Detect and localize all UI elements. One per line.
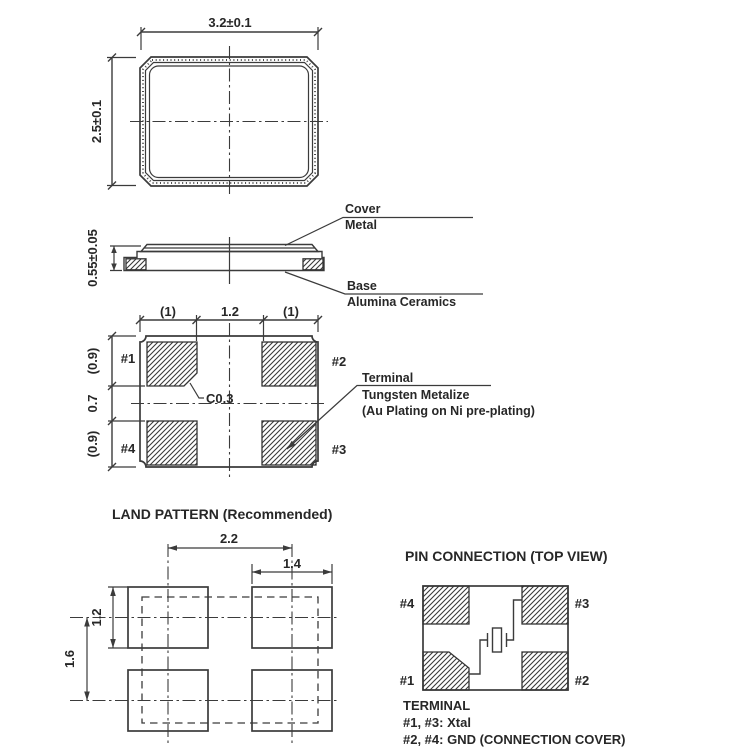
pin-pad-1: [423, 652, 469, 690]
pin-legend-line1: #1, #3: Xtal: [403, 715, 471, 730]
bottom-view: (1) 1.2 (1) (0.9) 0.7 (0.9) #1 #2 #4 #3 …: [85, 304, 535, 478]
land-dim-12-label: 1.2: [89, 608, 104, 626]
top-view: 3.2±0.1 2.5±0.1: [89, 15, 328, 197]
pin-legend-title: TERMINAL: [403, 698, 470, 713]
bottom-pin1-label: #1: [121, 351, 135, 366]
top-width-dim-label: 3.2±0.1: [208, 15, 251, 30]
chamfer-leader-line: [190, 383, 204, 398]
terminal-pad-1: [147, 342, 197, 386]
pin-label-2: #2: [575, 673, 589, 688]
base-leader-line: [285, 272, 483, 294]
side-base-outline: [124, 252, 324, 271]
terminal-pad-3: [262, 421, 316, 465]
pin-legend-line2: #2, #4: GND (CONNECTION COVER): [403, 732, 625, 747]
land-dim-14-arrow-right: [323, 569, 332, 575]
bottom-dim-left-label: (1): [160, 304, 176, 319]
cover-label-line2: Metal: [345, 218, 377, 232]
crystal-package-drawing: 3.2±0.1 2.5±0.1 0.55±0.05 Cover Metal Ba…: [0, 0, 750, 750]
land-pattern-title: LAND PATTERN (Recommended): [112, 506, 332, 522]
land-dim-12-arrow-top: [110, 587, 116, 596]
bottom-dim-center-label: 1.2: [221, 304, 239, 319]
pin-label-3: #3: [575, 596, 589, 611]
cover-label-line1: Cover: [345, 202, 381, 216]
side-view: 0.55±0.05 Cover Metal Base Alumina Ceram…: [85, 202, 483, 309]
crystal-wire-right: [507, 600, 523, 640]
land-dim-14-arrow-left: [252, 569, 261, 575]
land-dim-14-label: 1.4: [283, 556, 302, 571]
terminal-note-line1: Terminal: [362, 371, 413, 385]
land-dim-22-label: 2.2: [220, 531, 238, 546]
bottom-dim-right-label: (1): [283, 304, 299, 319]
land-dim-12-arrow-bottom: [110, 639, 116, 648]
pin-pad-2: [522, 652, 568, 690]
terminal-note-line2: Tungsten Metalize: [362, 388, 469, 402]
side-height-dim-label: 0.55±0.05: [85, 229, 100, 287]
side-terminal-left: [126, 259, 146, 270]
bottom-pin3-label: #3: [332, 442, 346, 457]
base-label-line2: Alumina Ceramics: [347, 295, 456, 309]
bottom-pin4-label: #4: [121, 441, 136, 456]
pin-connection-title: PIN CONNECTION (TOP VIEW): [405, 548, 608, 564]
pin-label-1: #1: [400, 673, 414, 688]
bottom-pin2-label: #2: [332, 354, 346, 369]
chamfer-label: C0.3: [206, 391, 233, 406]
crystal-symbol: [493, 628, 502, 652]
pin-pad-4: [423, 586, 469, 624]
pin-pad-3: [522, 586, 568, 624]
terminal-note-line3: (Au Plating on Ni pre-plating): [362, 404, 535, 418]
base-label-line1: Base: [347, 279, 377, 293]
land-dim-16-arrow-bottom: [84, 692, 90, 701]
bottom-dim-09top-label: (0.9): [85, 348, 100, 375]
terminal-pad-2: [262, 342, 316, 386]
top-height-dim-label: 2.5±0.1: [89, 100, 104, 143]
cover-leader-line: [285, 218, 473, 246]
bottom-dim-09bottom-label: (0.9): [85, 431, 100, 458]
side-height-arrow-top: [111, 246, 117, 253]
pin-label-4: #4: [400, 596, 415, 611]
terminal-pad-4: [147, 421, 197, 465]
pin-connection: PIN CONNECTION (TOP VIEW) #4 #3 #1 #2 TE…: [400, 548, 626, 747]
land-pattern: LAND PATTERN (Recommended) 2.2 1.4 1.2 1…: [62, 506, 340, 745]
land-dim-22-arrow-left: [168, 545, 177, 551]
land-dim-16-label: 1.6: [62, 650, 77, 668]
side-terminal-right: [303, 259, 323, 270]
bottom-dim-07-label: 0.7: [85, 394, 100, 412]
crystal-wire-left: [469, 640, 488, 674]
land-dim-22-arrow-right: [283, 545, 292, 551]
side-height-arrow-bottom: [111, 264, 117, 271]
